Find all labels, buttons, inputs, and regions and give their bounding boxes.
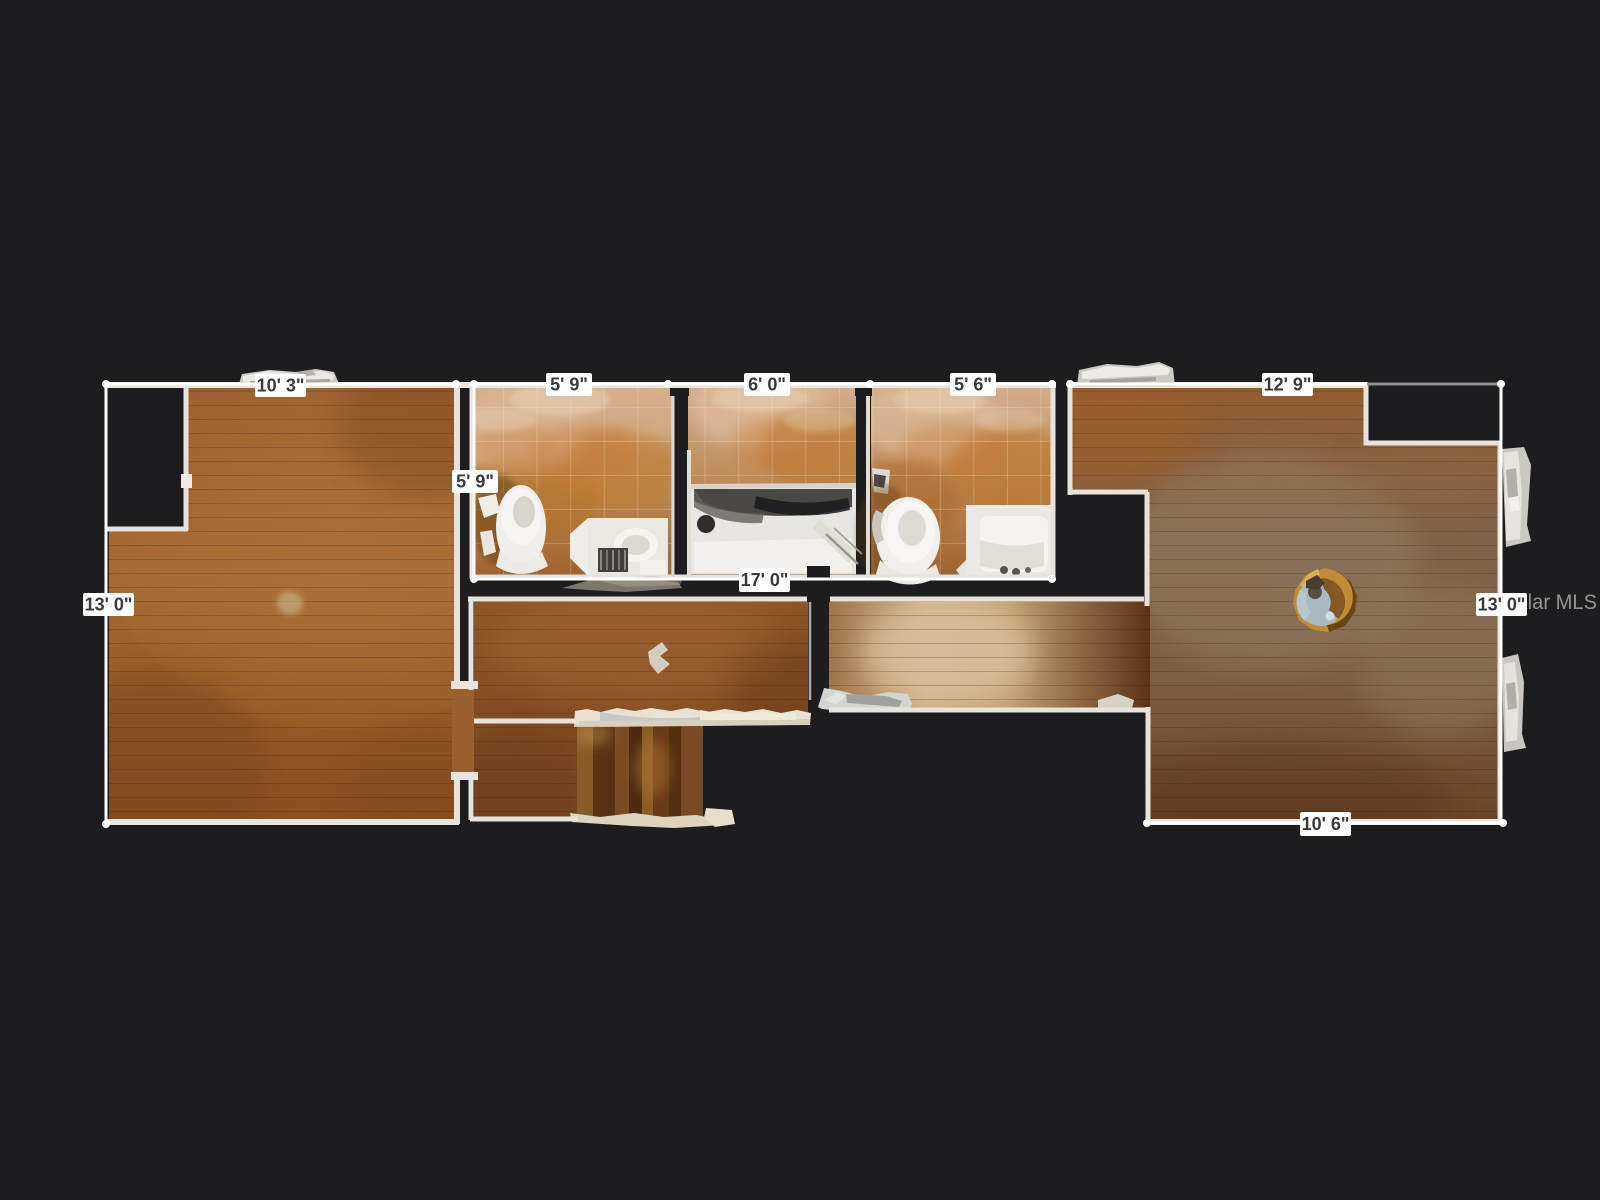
svg-text:12' 9": 12' 9" bbox=[1264, 375, 1312, 395]
svg-text:17' 0": 17' 0" bbox=[741, 570, 789, 590]
svg-text:5' 9": 5' 9" bbox=[550, 375, 588, 395]
svg-text:13' 0": 13' 0" bbox=[85, 595, 133, 615]
svg-text:5' 6": 5' 6" bbox=[954, 375, 992, 395]
svg-text:6' 0": 6' 0" bbox=[748, 375, 786, 395]
svg-text:10' 3": 10' 3" bbox=[257, 376, 305, 396]
svg-text:5' 9": 5' 9" bbox=[456, 472, 494, 492]
svg-text:10' 6": 10' 6" bbox=[1302, 814, 1350, 834]
svg-text:13' 0": 13' 0" bbox=[1478, 595, 1526, 615]
